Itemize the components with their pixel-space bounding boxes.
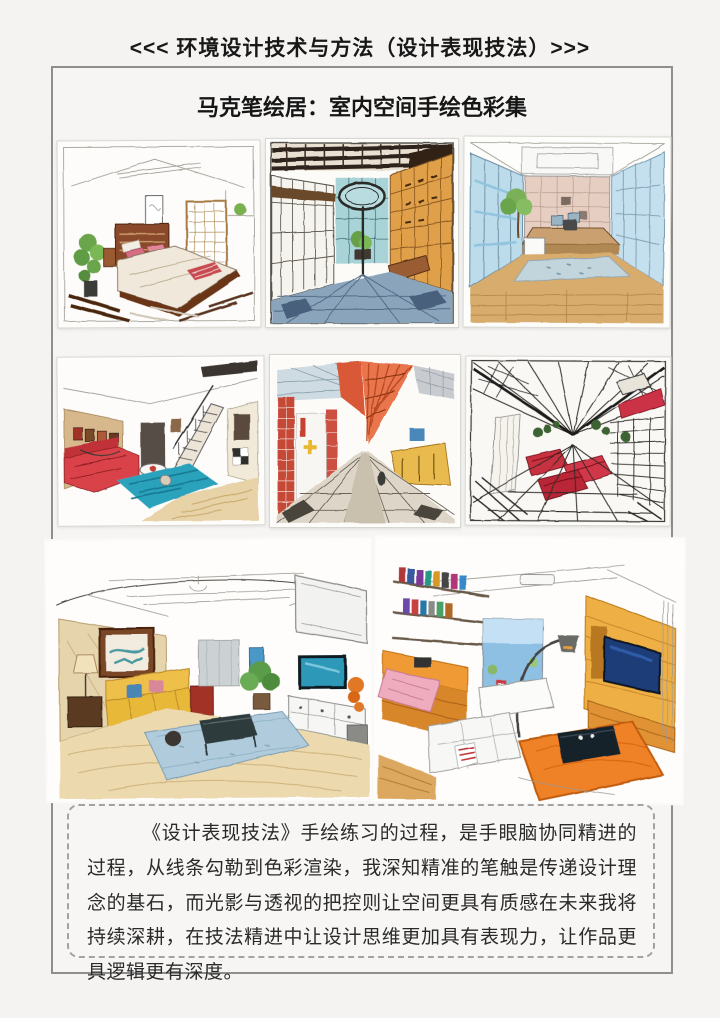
page-title: <<< 环境设计技术与方法（设计表现技法）>>> [0, 32, 720, 62]
sketch-industrial-red-lounge [465, 355, 672, 526]
sketch-japanese-bedroom [57, 139, 262, 328]
sketch-atrium-bookstore [265, 138, 459, 328]
poster-page: <<< 环境设计技术与方法（设计表现技法）>>> 马克笔绘居：室内空间手绘色彩集 [0, 0, 720, 1018]
sketch-loft-living-room [56, 355, 265, 526]
sketch-glass-office [462, 135, 671, 328]
statement-box: 《设计表现技法》手绘练习的过程，是手眼脑协同精进的过程，从线条勾勒到色彩渲染，我… [67, 804, 655, 958]
sketch-yellow-sofa-living-room [44, 537, 374, 803]
statement-paragraph: 《设计表现技法》手绘练习的过程，是手眼脑协同精进的过程，从线条勾勒到色彩渲染，我… [69, 806, 653, 991]
sketch-red-beam-corridor [269, 354, 461, 528]
content-frame: 马克笔绘居：室内空间手绘色彩集 [51, 66, 673, 974]
subtitle: 马克笔绘居：室内空间手绘色彩集 [53, 90, 671, 122]
sketch-warm-orange-living-room [372, 535, 686, 806]
